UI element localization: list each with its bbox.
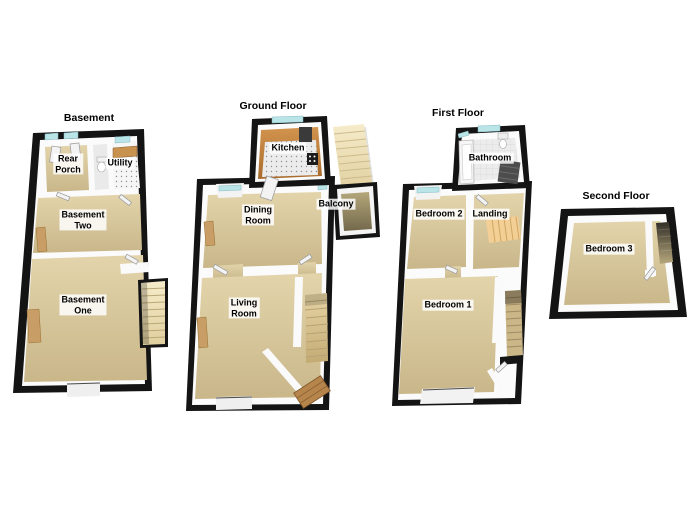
living-room-floor <box>195 273 322 399</box>
floor-title-first-floor: First Floor <box>432 107 484 119</box>
floor-title-basement: Basement <box>64 112 114 124</box>
window-icon <box>417 187 439 193</box>
floorplan-drawing <box>0 0 700 509</box>
window-icon <box>64 132 78 139</box>
room-label-utility: Utility <box>105 158 134 169</box>
window-icon <box>478 125 500 132</box>
shower-mat <box>498 160 521 185</box>
radiator-panel <box>197 317 208 348</box>
second-floor-plan <box>549 207 687 319</box>
room-label-rear-porch: Rear Porch <box>53 153 83 174</box>
basement-one-floor <box>24 255 147 382</box>
floor-title-second-floor: Second Floor <box>582 190 649 202</box>
landing-stairs <box>486 216 521 243</box>
floor-title-ground-floor: Ground Floor <box>239 100 306 112</box>
room-label-kitchen: Kitchen <box>269 143 306 154</box>
room-label-basement-one: Basement One <box>59 294 106 315</box>
room-label-bedroom-3: Bedroom 3 <box>583 244 634 255</box>
balcony-block <box>333 182 380 240</box>
window-icon <box>45 133 58 140</box>
toilet-icon <box>98 162 106 172</box>
room-label-balcony: Balcony <box>316 199 355 210</box>
radiator-panel <box>27 309 41 343</box>
basement-plan <box>13 129 168 397</box>
interior-stairs <box>305 293 328 363</box>
window-icon <box>272 116 303 123</box>
room-label-bathroom: Bathroom <box>467 153 514 164</box>
bedroom2-floor <box>407 195 466 269</box>
first-floor-plan <box>392 125 532 406</box>
utility-counter <box>113 146 137 158</box>
room-label-landing: Landing <box>471 209 510 220</box>
ground-floor-plan <box>186 116 380 411</box>
radiator-panel <box>36 227 47 252</box>
room-label-living-room: Living Room <box>229 297 260 318</box>
bedroom3-floor <box>564 221 670 305</box>
floorplan-canvas: Basement Ground Floor First Floor Second… <box>0 0 700 509</box>
dining-room-floor <box>203 192 322 268</box>
room-label-bedroom-2: Bedroom 2 <box>413 209 464 220</box>
stairwell-wall <box>120 262 149 274</box>
window-icon <box>219 185 241 191</box>
stairwell-stairs <box>505 290 523 358</box>
room-label-basement-two: Basement Two <box>59 209 106 230</box>
radiator-panel <box>204 221 215 246</box>
room-label-dining-room: Dining Room <box>242 204 274 225</box>
hob-icon <box>307 153 318 165</box>
window-icon <box>115 136 130 143</box>
fridge-icon <box>299 127 312 142</box>
basement-stairs <box>138 278 168 348</box>
bedroom1-floor <box>399 276 498 394</box>
room-label-bedroom-1: Bedroom 1 <box>422 300 473 311</box>
